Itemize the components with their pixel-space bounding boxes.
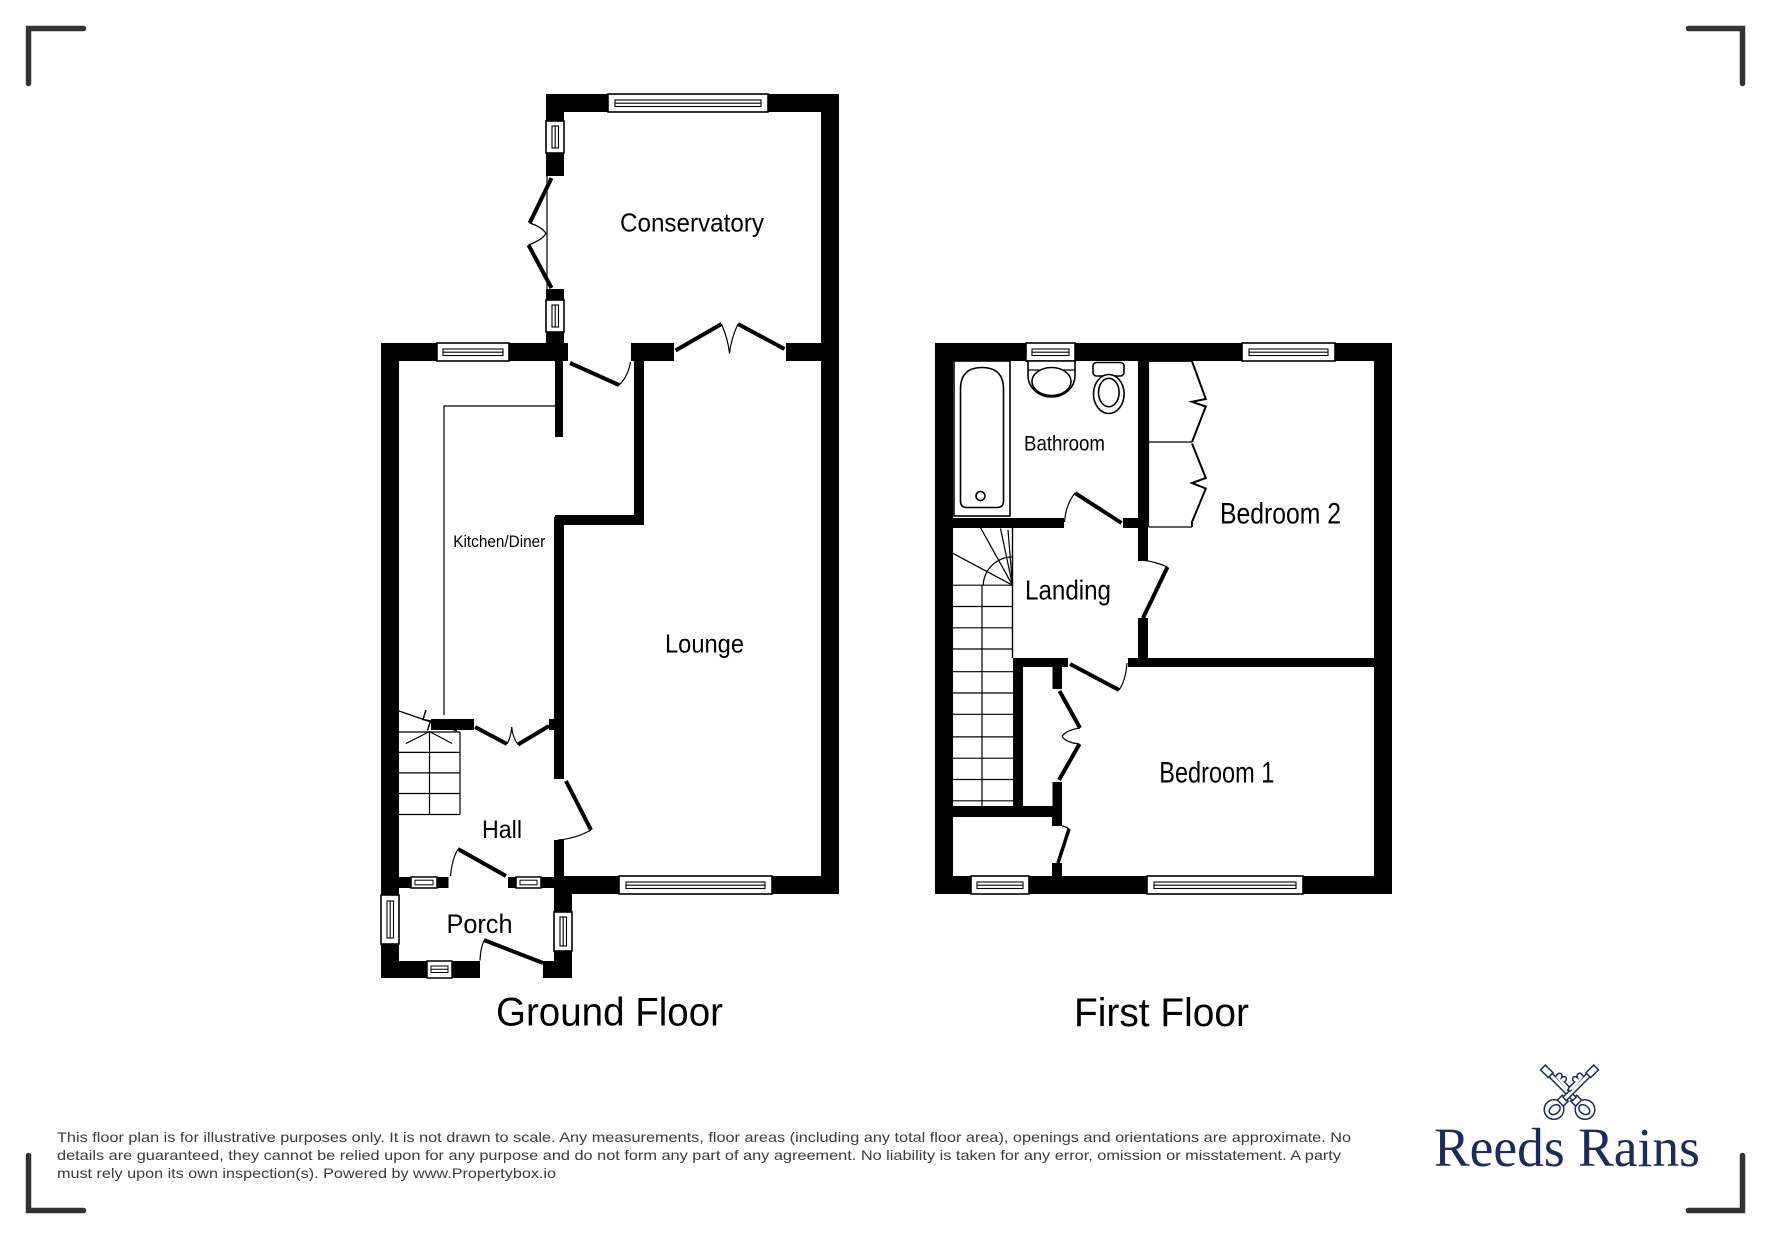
svg-text:Landing: Landing	[1025, 575, 1111, 606]
svg-text:First Floor: First Floor	[1074, 991, 1249, 1035]
svg-text:Ground Floor: Ground Floor	[496, 991, 723, 1035]
svg-text:Reeds Rains: Reeds Rains	[1434, 1117, 1700, 1178]
svg-text:Bedroom 1: Bedroom 1	[1159, 757, 1274, 790]
svg-text:Kitchen/Diner: Kitchen/Diner	[453, 532, 545, 551]
svg-text:Porch: Porch	[447, 909, 513, 939]
svg-text:Bedroom 2: Bedroom 2	[1220, 498, 1341, 531]
svg-text:Lounge: Lounge	[665, 629, 744, 659]
svg-text:Hall: Hall	[482, 816, 522, 844]
svg-text:Conservatory: Conservatory	[620, 208, 764, 238]
svg-text:Bathroom: Bathroom	[1024, 432, 1105, 456]
svg-text:This floor plan is for illustr: This floor plan is for illustrative purp…	[57, 1129, 1351, 1145]
svg-text:must rely upon its own inspect: must rely upon its own inspection(s). Po…	[57, 1165, 556, 1181]
svg-text:details are guaranteed, they c: details are guaranteed, they cannot be r…	[57, 1147, 1341, 1163]
